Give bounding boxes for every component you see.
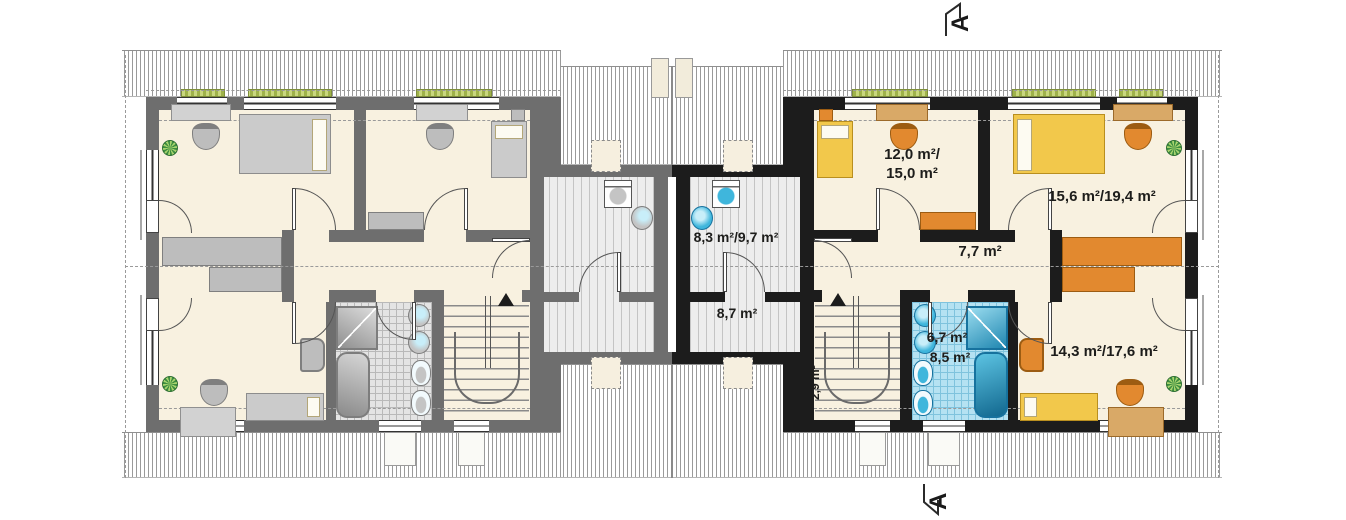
room-label-bedroom-large: 15,6 m²/19,4 m² (1022, 188, 1182, 207)
plant-icon (162, 376, 178, 392)
pillow (1017, 119, 1032, 171)
desk-icon (416, 104, 468, 121)
headroom-dashed-line (125, 266, 654, 267)
shower-icon (336, 306, 378, 350)
bed-icon (1020, 393, 1098, 421)
roof-hatch-bottom (783, 432, 1222, 478)
balcony-rail (1202, 150, 1204, 240)
wall-laundry-divider (690, 292, 725, 302)
floor-plan: 12,0 m²/ 15,0 m² 15,6 m²/19,4 m² 7,7 m² … (0, 0, 1346, 520)
sink-icon (631, 206, 653, 230)
nightstand-icon (511, 109, 525, 121)
stair-direction-arrow (830, 293, 846, 306)
dormer-below-window (458, 432, 485, 466)
wardrobe-icon (209, 267, 282, 292)
plant-icon (162, 140, 178, 156)
room-label-bedroom-rear: 14,3 m²/17,6 m² (1019, 343, 1189, 362)
balcony-rail (140, 295, 142, 385)
room-label-stairs: 2,9 m² (808, 348, 823, 400)
wall-party (676, 165, 690, 364)
toilet-icon (411, 360, 431, 386)
pillow (307, 397, 320, 417)
roof-seam (671, 66, 673, 165)
washing-machine-icon (604, 180, 632, 208)
wall-hall-south (414, 290, 444, 302)
section-letter: A (947, 15, 974, 32)
headroom-dashed-line (146, 90, 561, 91)
headroom-dashed-line (783, 90, 1198, 91)
window (244, 97, 336, 110)
balcony-door-leaf (146, 298, 159, 331)
wall-bedroom-divider (354, 110, 366, 230)
section-marker-a-top: A (938, 0, 986, 40)
desk-icon (876, 104, 928, 121)
wardrobe-icon (162, 237, 282, 266)
wall-hall-north (329, 230, 424, 242)
unit-left: 12,0 m²/ 15,0 m² 15,6 m²/19,4 m² 7,7 m² … (122, 0, 672, 520)
wall-stair-bath (900, 302, 912, 420)
washing-machine-icon (712, 180, 740, 208)
wall-hall-north (920, 230, 1015, 242)
wall-party (654, 165, 668, 364)
room-label-bath-1: 6,7 m² (912, 329, 982, 347)
dormer-below-window (384, 432, 416, 466)
roof-seam (671, 364, 673, 478)
room-label-hall: 7,7 m² (930, 243, 1030, 262)
wall-bedroom-divider (978, 110, 990, 230)
bed-icon (239, 114, 331, 174)
plant-icon (1166, 376, 1182, 392)
window-balcony (1185, 150, 1198, 200)
pillow (312, 119, 327, 171)
window (923, 420, 965, 432)
desk-icon (180, 407, 236, 437)
wardrobe-icon (1062, 267, 1135, 292)
wardrobe-icon (1062, 237, 1182, 266)
balcony-door-leaf (1185, 298, 1198, 331)
window (379, 420, 421, 432)
stair-handrail (454, 332, 520, 404)
bed-icon (817, 121, 853, 178)
wall-hall-south (900, 290, 930, 302)
pillow (495, 125, 523, 139)
section-letter: A (925, 493, 952, 510)
room-area: 12,0 m²/ (852, 146, 972, 165)
sink-icon (691, 206, 713, 230)
section-marker-a-bottom: A (916, 482, 964, 520)
toilet-icon (411, 390, 431, 416)
room-label-bath-2: 8,5 m² (915, 349, 985, 367)
roof-window (723, 140, 753, 172)
bed-icon (1013, 114, 1105, 174)
pillow (821, 125, 849, 139)
roof-window (591, 357, 621, 389)
wall-gable-stub-bottom (783, 352, 800, 432)
room-label-laundry: 8,3 m²/9,7 m² (678, 229, 794, 247)
chimney (675, 58, 693, 98)
nightstand-icon (819, 109, 833, 121)
balcony-rail (140, 150, 142, 240)
roof-window (591, 140, 621, 172)
desk-icon (171, 104, 231, 121)
plant-icon (1166, 140, 1182, 156)
desk-icon (1113, 104, 1173, 121)
balcony-rail (1202, 295, 1204, 385)
balcony-door-leaf (146, 200, 159, 233)
wardrobe-icon (920, 212, 976, 230)
pillow (1024, 397, 1037, 417)
wall-stair-bath (432, 302, 444, 420)
unit-right: 12,0 m²/ 15,0 m² 15,6 m²/19,4 m² 7,7 m² … (672, 0, 1222, 520)
wall-laundry-divider (544, 292, 579, 302)
bed-icon (246, 393, 324, 421)
wall-laundry-divider (619, 292, 654, 302)
desk-icon (1108, 407, 1164, 437)
wall-gable-stub-bottom (544, 352, 561, 432)
window (1008, 97, 1100, 110)
toilet-icon (913, 390, 933, 416)
stair-handrail (824, 332, 890, 404)
wardrobe-icon (368, 212, 424, 230)
dormer-below-window (928, 432, 960, 466)
bathtub-icon (336, 352, 370, 418)
wall-hall-south (329, 290, 376, 302)
window-balcony (146, 331, 159, 385)
roof-hatch-bottom (122, 432, 561, 478)
room-label-storage: 8,7 m² (687, 305, 787, 323)
headroom-dashed-line (690, 266, 1219, 267)
window-balcony (146, 150, 159, 200)
room-area: 15,0 m² (852, 165, 972, 184)
bed-icon (491, 121, 527, 178)
wall-west (530, 97, 544, 432)
chimney (651, 58, 669, 98)
wall-hall-south (968, 290, 1015, 302)
armchair-icon (300, 338, 325, 372)
roof-window (723, 357, 753, 389)
wall-laundry-divider (765, 292, 800, 302)
room-label-bedroom-small: 12,0 m²/ 15,0 m² (852, 146, 972, 184)
balcony-door-leaf (1185, 200, 1198, 233)
dormer-below-window (859, 432, 886, 466)
window (855, 420, 890, 432)
window (454, 420, 489, 432)
stair-direction-arrow (498, 293, 514, 306)
